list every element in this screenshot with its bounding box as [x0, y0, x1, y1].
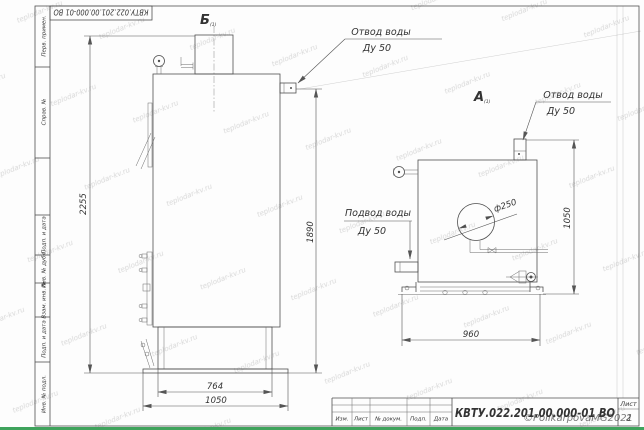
dim-b-base-width: 764 [207, 382, 223, 392]
view-b-label-sub: (1) [210, 22, 217, 28]
inlet-a-line1: Подвод воды [345, 208, 412, 219]
dim-b-total-height: 2255 [79, 193, 89, 215]
title-col-podp: Подп. [410, 417, 427, 423]
dim-b-total-width: 1050 [205, 396, 227, 406]
sheet-label: Лист [619, 400, 637, 408]
drawing-sheet: teplodar-kv.ru teplodar-kv.ru КВТУ.022.2… [0, 0, 644, 430]
side-label-sprav-no: Справ. № [42, 98, 48, 125]
title-col-dokum: № докум. [374, 417, 402, 423]
outlet-b-line2: Ду 50 [362, 43, 391, 54]
view-a-label: А [473, 90, 484, 105]
dim-a-outlet-height: 1050 [563, 207, 573, 229]
view-b-label: Б [200, 13, 210, 28]
copyright-watermark: ©PolikarpovaMG2021 [523, 413, 633, 424]
outlet-a-line2: Ду 50 [546, 106, 575, 117]
outlet-a-line1: Отвод воды [543, 90, 603, 101]
outlet-b-line1: Отвод воды [351, 27, 411, 38]
view-a-label-sub: (1) [484, 99, 491, 105]
watermark-layer [0, 0, 644, 430]
title-col-izm: Изм. [336, 417, 349, 423]
dim-a-width: 960 [463, 330, 479, 340]
side-label-perv-primen: Перв. примен. [42, 15, 48, 57]
drawing-canvas: teplodar-kv.ru teplodar-kv.ru КВТУ.022.2… [0, 0, 644, 430]
side-label-podp-data-1: Подп. и дата [42, 216, 48, 254]
title-col-list: Лист [353, 417, 369, 423]
corner-stamp-text: КВТУ.022.201.00.000-01 ВО [54, 8, 149, 17]
side-label-vzam-inv: Взам. инв. № [42, 281, 48, 319]
side-label-podp-data-2: Подп. и дата [42, 320, 48, 358]
side-label-inv-podl: Инв. № подл. [42, 375, 48, 413]
inlet-a-line2: Ду 50 [357, 226, 386, 237]
dim-b-outlet-height: 1890 [306, 221, 316, 243]
title-col-data: Дата [433, 417, 449, 423]
